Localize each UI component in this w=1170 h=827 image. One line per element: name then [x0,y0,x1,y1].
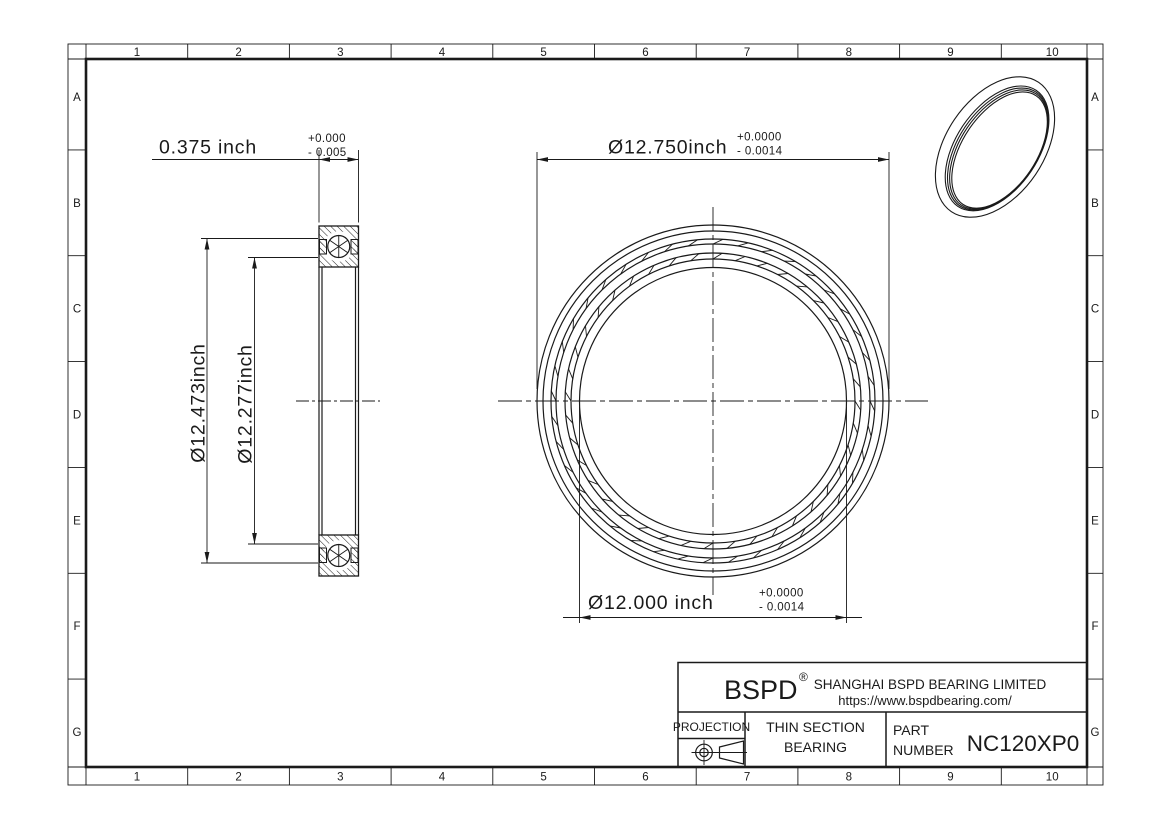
grid-row-label: A [73,92,81,104]
grid-col-label: 5 [540,47,546,59]
grid-col-label: 9 [947,47,953,59]
grid-col-label: 10 [1046,772,1059,784]
grid-col-label: 6 [642,47,648,59]
grid-col-label: 7 [744,772,750,784]
grid-col-label: 4 [439,47,446,59]
frame-row-dividers [68,59,1103,767]
grid-col-label: 2 [235,772,241,784]
dim-width: 0.375 inch +0.000 - 0.005 [152,133,359,223]
grid-row-label: B [73,198,81,210]
grid-col-label: 5 [540,772,546,784]
section-view [296,226,380,576]
grid-row-label: F [73,621,80,633]
grid-row-label: D [73,410,81,422]
dim-inner-race-value: Ø12.277inch [235,344,257,463]
company-logo: BSPD [724,675,798,705]
grid-row-label: C [1091,304,1099,316]
grid-row-label: E [1091,515,1099,527]
projection-label: PROJECTION [673,720,750,734]
grid-col-label: 4 [439,772,446,784]
grid-column-labels-top: 1 2 3 4 5 6 7 8 9 10 [134,47,1059,59]
grid-row-label: G [1091,727,1100,739]
grid-row-labels-left: A B C D E F G [73,92,82,739]
race-shoulder [320,240,327,255]
product-name-line2: BEARING [784,739,847,755]
dim-width-value: 0.375 inch [159,137,257,159]
dim-outer-race-value: Ø12.473inch [188,343,210,462]
grid-column-labels-bottom: 1 2 3 4 5 6 7 8 9 10 [134,772,1059,784]
grid-row-label: B [1091,198,1099,210]
dim-bore-diameter: Ø12.000 inch +0.0000 - 0.0014 [563,407,862,623]
dim-od-tol-plus: +0.0000 [737,132,782,144]
dim-width-tol-plus: +0.000 [308,133,346,145]
title-block: BSPD ® SHANGHAI BSPD BEARING LIMITED htt… [673,663,1087,768]
grid-col-label: 6 [642,772,648,784]
grid-row-label: D [1091,410,1099,422]
iso-outer-edge [911,55,1079,239]
dim-bore-tol-minus: - 0.0014 [759,602,805,614]
grid-col-label: 8 [846,47,852,59]
grid-col-label: 9 [947,772,953,784]
grid-row-label: A [1091,92,1099,104]
drawing-canvas: 1 2 3 4 5 6 7 8 9 10 1 2 3 4 5 6 7 8 9 1… [0,0,1170,827]
part-label-line2: NUMBER [893,742,954,758]
grid-col-label: 10 [1046,47,1059,59]
grid-col-label: 8 [846,772,852,784]
race-shoulder [351,240,358,255]
grid-col-label: 7 [744,47,750,59]
company-name: SHANGHAI BSPD BEARING LIMITED [814,677,1047,692]
grid-col-label: 2 [235,47,241,59]
iso-chamfer-edge [927,70,1069,228]
grid-row-labels-right: A B C D E F G [1091,92,1100,739]
dim-od-tol-minus: - 0.0014 [737,146,783,158]
dim-width-tol-minus: - 0.005 [308,147,347,159]
ball-bottom [328,545,350,567]
part-number: NC120XP0 [967,731,1080,756]
product-name-line1: THIN SECTION [766,719,865,735]
grid-col-label: 3 [337,47,343,59]
grid-row-label: F [1091,621,1098,633]
race-shoulder [351,548,358,563]
race-shoulder [320,548,327,563]
grid-row-label: C [73,304,81,316]
grid-col-label: 1 [134,47,140,59]
grid-col-label: 3 [337,772,343,784]
engineering-drawing: 1 2 3 4 5 6 7 8 9 10 1 2 3 4 5 6 7 8 9 1… [0,0,1170,827]
company-website: https://www.bspdbearing.com/ [838,693,1012,708]
dim-bore-tol-plus: +0.0000 [759,588,804,600]
registered-mark: ® [799,670,808,684]
isometric-view [911,55,1079,239]
grid-row-label: E [73,515,81,527]
ball-top [328,236,350,258]
part-label-line1: PART [893,722,929,738]
front-view [498,207,928,595]
grid-col-label: 1 [134,772,140,784]
dim-bore-value: Ø12.000 inch [588,592,714,614]
grid-row-label: G [73,727,82,739]
third-angle-projection-icon [692,740,748,765]
dim-od-value: Ø12.750inch [608,137,727,159]
